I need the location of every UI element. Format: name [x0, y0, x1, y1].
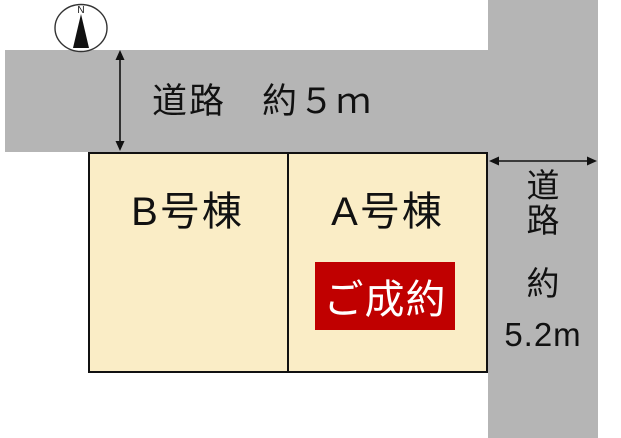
road-right-width-value: 5.2m	[504, 317, 581, 352]
plot-a-label: A号棟	[287, 186, 488, 230]
road-top-width-value: 約５ｍ	[262, 73, 373, 124]
road-right-name-char-2: 路	[527, 203, 560, 238]
road-right-name-char-1: 道	[527, 168, 560, 203]
sold-status-badge: ご成約	[315, 262, 455, 330]
road-top-label: 道路 約５ｍ	[152, 76, 373, 120]
road-right-label: 道 路 約 5.2m	[488, 168, 598, 352]
compass-north-label: N	[77, 5, 84, 16]
road-top-name: 道路	[152, 73, 226, 124]
road-right-approx: 約	[527, 266, 560, 301]
site-plan-diagram: N 道路 約５ｍ 道 路 約 5.2m B号棟 A号棟 ご成約	[0, 0, 621, 438]
north-compass-icon: N	[53, 2, 109, 54]
plot-b-label: B号棟	[88, 186, 287, 230]
road-top-width-arrow-icon	[112, 50, 128, 151]
